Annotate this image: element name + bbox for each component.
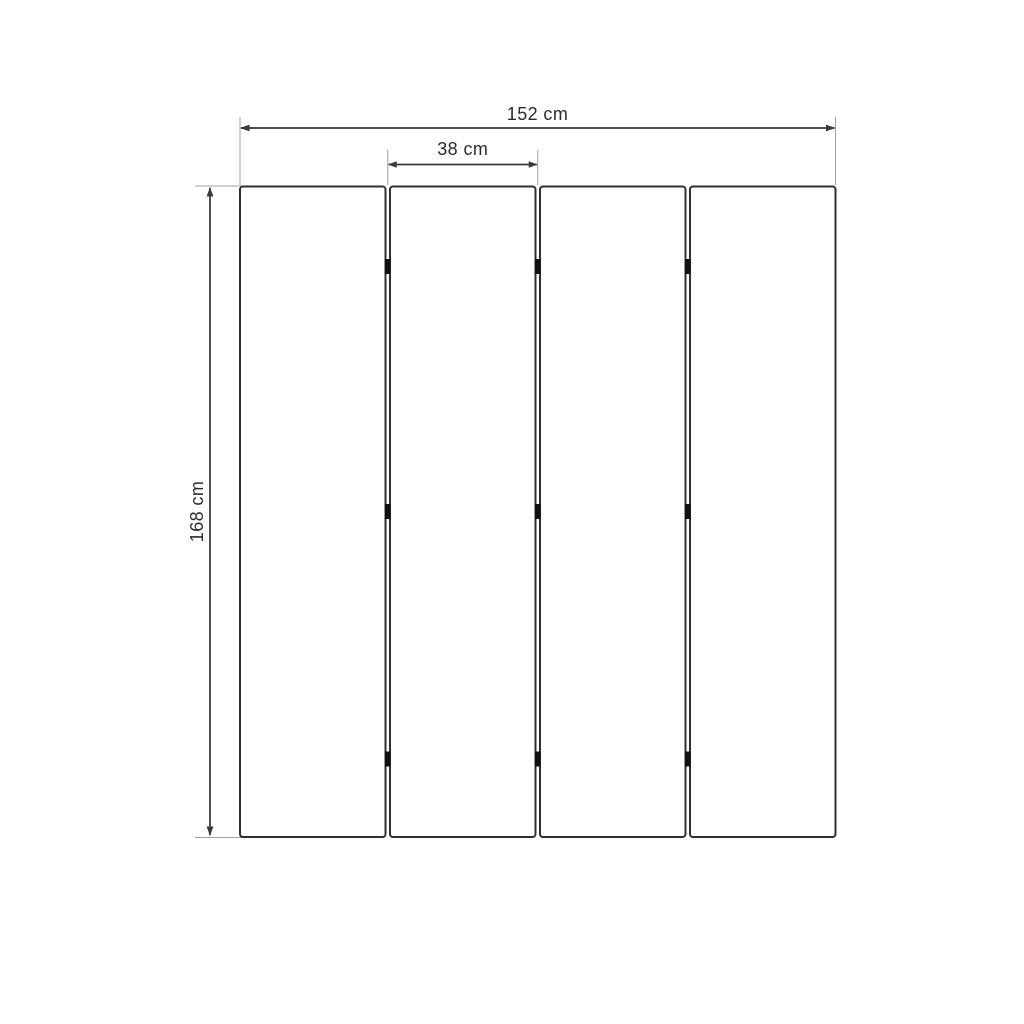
dimension-total-width: 152 cm <box>240 104 836 131</box>
hinge-joint1-bottom <box>385 752 391 767</box>
hinge-joint2-bottom <box>535 752 541 767</box>
panel-4 <box>690 187 836 838</box>
total-width-label: 152 cm <box>507 104 568 124</box>
arrowhead-down-icon <box>207 827 214 837</box>
panel-dimension-diagram: 152 cm 38 cm 168 cm <box>0 0 1024 1024</box>
hinge-joint3-bottom <box>685 752 691 767</box>
hinge-joint3-middle <box>685 504 691 519</box>
height-label: 168 cm <box>187 481 207 542</box>
panel-1 <box>240 187 386 838</box>
arrowhead-left-icon <box>240 125 250 132</box>
dimension-panel-width: 38 cm <box>388 139 538 168</box>
hinge-joint3-top <box>685 259 691 274</box>
dimension-height: 168 cm <box>187 187 213 836</box>
arrowhead-right-icon <box>826 125 836 132</box>
drawing-canvas: 152 cm 38 cm 168 cm <box>0 0 1024 1024</box>
hinge-joint1-middle <box>385 504 391 519</box>
arrowhead-left-icon <box>388 161 397 167</box>
arrowhead-up-icon <box>207 187 214 197</box>
arrowhead-right-icon <box>529 161 538 167</box>
panel-width-label: 38 cm <box>437 139 488 159</box>
panel-2 <box>390 187 536 838</box>
hinge-joint2-top <box>535 259 541 274</box>
panel-3 <box>540 187 686 838</box>
hinge-joint2-middle <box>535 504 541 519</box>
hinge-joint1-top <box>385 259 391 274</box>
